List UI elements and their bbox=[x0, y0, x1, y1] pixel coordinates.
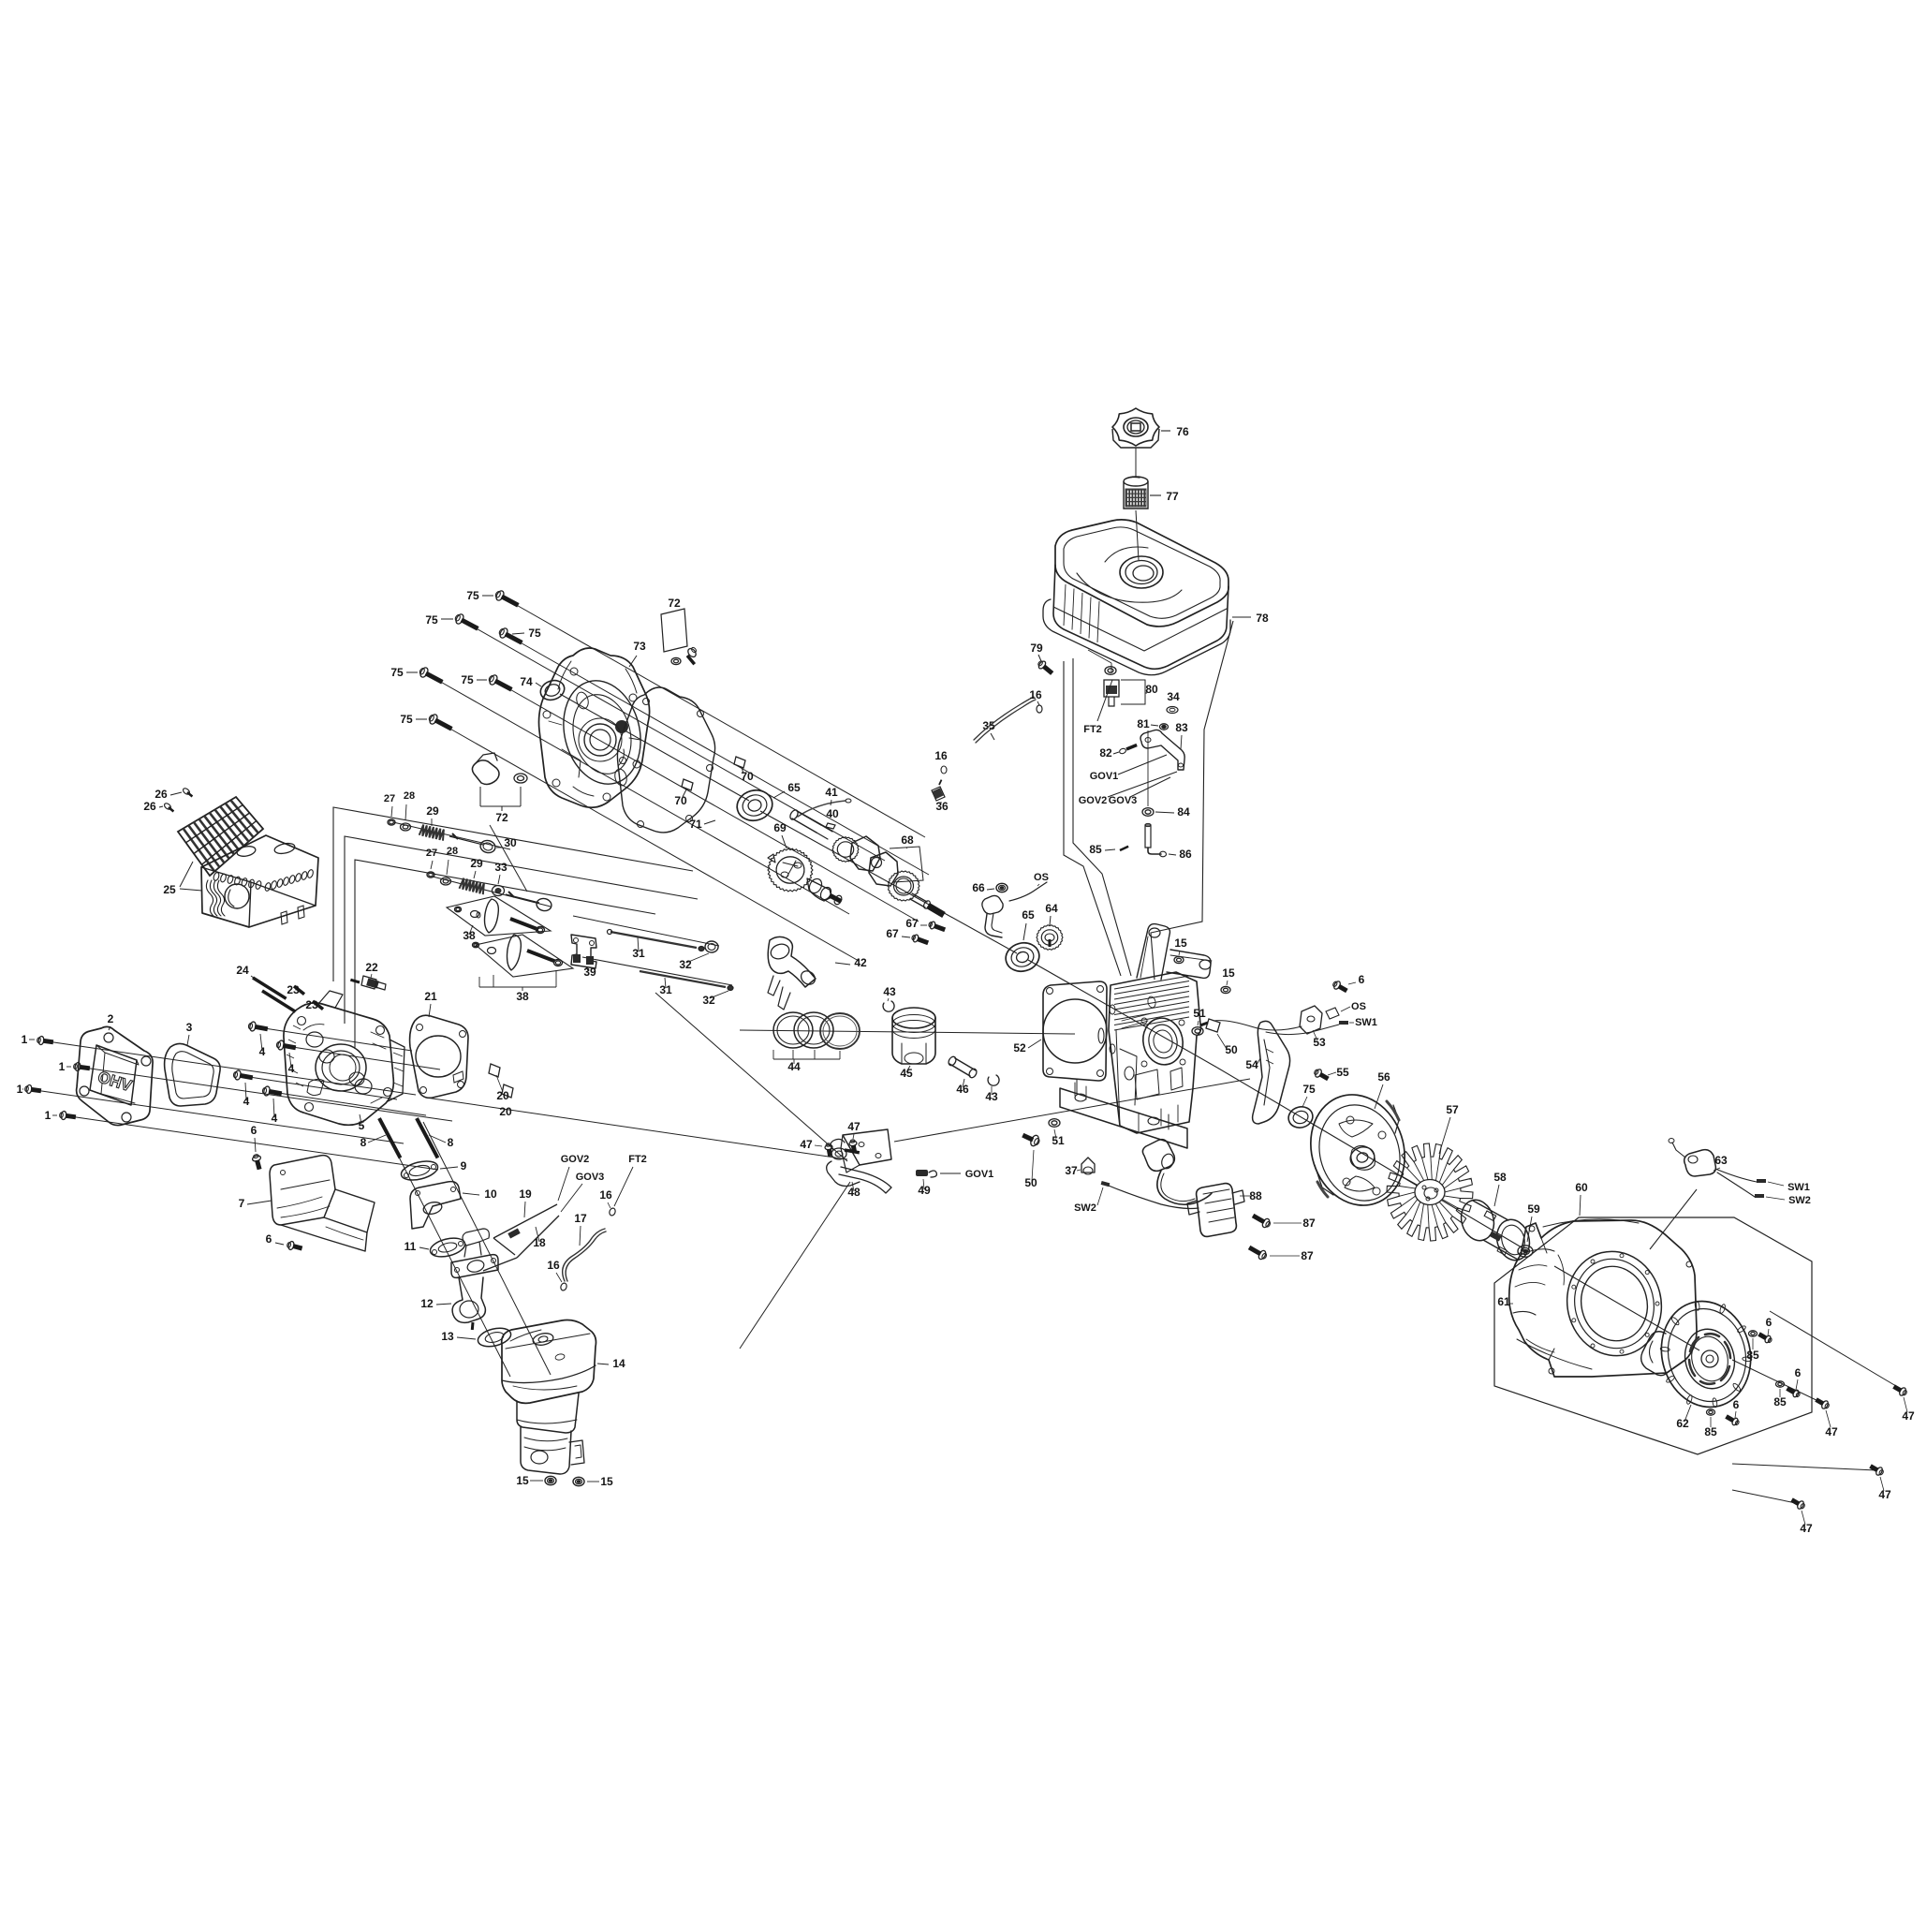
svg-text:GOV1: GOV1 bbox=[1090, 771, 1119, 782]
svg-text:75: 75 bbox=[400, 713, 413, 726]
svg-text:4: 4 bbox=[288, 1062, 295, 1075]
svg-text:6: 6 bbox=[1733, 1398, 1740, 1411]
svg-text:32: 32 bbox=[702, 994, 715, 1007]
svg-text:66: 66 bbox=[972, 881, 985, 894]
svg-text:83: 83 bbox=[1175, 721, 1188, 734]
svg-text:74: 74 bbox=[520, 675, 533, 688]
svg-text:32: 32 bbox=[679, 958, 692, 971]
svg-text:43: 43 bbox=[883, 985, 896, 998]
svg-text:26: 26 bbox=[154, 788, 168, 801]
svg-text:85: 85 bbox=[1089, 843, 1102, 856]
svg-text:50: 50 bbox=[1225, 1043, 1238, 1056]
svg-text:15: 15 bbox=[600, 1475, 613, 1488]
svg-text:27: 27 bbox=[426, 848, 437, 859]
svg-text:47: 47 bbox=[847, 1120, 861, 1133]
svg-text:75: 75 bbox=[1302, 1083, 1316, 1096]
svg-text:10: 10 bbox=[484, 1187, 497, 1201]
svg-text:13: 13 bbox=[441, 1330, 454, 1343]
svg-text:59: 59 bbox=[1527, 1202, 1540, 1216]
svg-text:62: 62 bbox=[1676, 1417, 1689, 1430]
svg-text:54: 54 bbox=[1245, 1058, 1258, 1071]
svg-text:85: 85 bbox=[1704, 1425, 1717, 1438]
svg-text:20: 20 bbox=[499, 1105, 512, 1118]
svg-text:47: 47 bbox=[1825, 1425, 1838, 1438]
svg-text:77: 77 bbox=[1166, 490, 1179, 503]
svg-text:16: 16 bbox=[547, 1259, 560, 1272]
svg-text:4: 4 bbox=[259, 1045, 266, 1058]
svg-text:22: 22 bbox=[365, 961, 378, 974]
svg-text:56: 56 bbox=[1377, 1070, 1390, 1084]
svg-text:29: 29 bbox=[426, 804, 439, 818]
svg-text:75: 75 bbox=[425, 613, 438, 627]
svg-text:36: 36 bbox=[935, 800, 949, 813]
svg-text:47: 47 bbox=[1800, 1522, 1813, 1535]
svg-text:23: 23 bbox=[305, 998, 318, 1011]
svg-text:GOV1: GOV1 bbox=[965, 1169, 994, 1180]
svg-text:15: 15 bbox=[1174, 937, 1187, 950]
svg-text:72: 72 bbox=[668, 597, 681, 610]
svg-text:47: 47 bbox=[800, 1138, 813, 1151]
svg-text:58: 58 bbox=[1493, 1171, 1507, 1184]
svg-text:8: 8 bbox=[448, 1136, 454, 1149]
svg-text:25: 25 bbox=[163, 883, 176, 896]
svg-text:71: 71 bbox=[689, 818, 702, 831]
svg-text:38: 38 bbox=[463, 929, 476, 942]
svg-text:42: 42 bbox=[854, 956, 867, 969]
svg-text:86: 86 bbox=[1179, 848, 1192, 861]
svg-text:47: 47 bbox=[1902, 1409, 1915, 1423]
svg-text:OS: OS bbox=[1034, 872, 1049, 883]
svg-text:47: 47 bbox=[1878, 1488, 1891, 1501]
svg-text:69: 69 bbox=[773, 821, 787, 834]
svg-text:30: 30 bbox=[504, 836, 517, 849]
svg-text:FT2: FT2 bbox=[1083, 724, 1102, 735]
svg-text:SW1: SW1 bbox=[1787, 1182, 1810, 1193]
svg-text:41: 41 bbox=[825, 786, 838, 799]
svg-text:24: 24 bbox=[236, 964, 249, 977]
svg-text:7: 7 bbox=[239, 1197, 245, 1210]
svg-text:3: 3 bbox=[186, 1021, 193, 1034]
svg-text:SW2: SW2 bbox=[1074, 1202, 1096, 1214]
svg-text:75: 75 bbox=[466, 589, 479, 602]
svg-text:23: 23 bbox=[287, 983, 300, 996]
svg-text:16: 16 bbox=[599, 1188, 612, 1202]
svg-text:16: 16 bbox=[934, 749, 948, 762]
svg-text:75: 75 bbox=[461, 673, 474, 686]
svg-text:28: 28 bbox=[447, 846, 458, 857]
svg-text:19: 19 bbox=[519, 1187, 532, 1201]
svg-text:6: 6 bbox=[1359, 973, 1365, 986]
svg-text:78: 78 bbox=[1256, 612, 1269, 625]
svg-text:72: 72 bbox=[495, 811, 508, 824]
svg-text:63: 63 bbox=[1714, 1154, 1728, 1167]
svg-text:37: 37 bbox=[1065, 1164, 1078, 1177]
svg-text:28: 28 bbox=[404, 790, 415, 802]
svg-text:15: 15 bbox=[1222, 966, 1235, 980]
svg-text:26: 26 bbox=[143, 800, 156, 813]
svg-text:8: 8 bbox=[360, 1136, 367, 1149]
svg-text:27: 27 bbox=[384, 793, 395, 804]
svg-text:38: 38 bbox=[516, 990, 529, 1003]
svg-text:SW1: SW1 bbox=[1355, 1017, 1377, 1028]
svg-text:14: 14 bbox=[612, 1357, 625, 1370]
svg-text:5: 5 bbox=[359, 1119, 365, 1132]
svg-text:55: 55 bbox=[1336, 1066, 1349, 1079]
svg-text:1: 1 bbox=[59, 1060, 66, 1073]
svg-text:12: 12 bbox=[420, 1297, 434, 1310]
svg-text:29: 29 bbox=[470, 857, 483, 870]
svg-text:SW2: SW2 bbox=[1788, 1195, 1811, 1206]
svg-text:67: 67 bbox=[905, 917, 919, 930]
svg-text:60: 60 bbox=[1575, 1181, 1588, 1194]
svg-text:67: 67 bbox=[886, 927, 899, 940]
svg-text:9: 9 bbox=[461, 1159, 467, 1172]
svg-text:15: 15 bbox=[516, 1474, 529, 1487]
svg-text:OS: OS bbox=[1351, 1001, 1366, 1012]
svg-text:65: 65 bbox=[787, 781, 801, 794]
svg-text:33: 33 bbox=[494, 861, 507, 874]
svg-text:85: 85 bbox=[1773, 1395, 1787, 1408]
svg-text:2: 2 bbox=[108, 1012, 114, 1025]
svg-text:39: 39 bbox=[583, 966, 596, 979]
svg-text:1: 1 bbox=[22, 1033, 28, 1046]
svg-text:1: 1 bbox=[17, 1083, 23, 1096]
svg-text:61: 61 bbox=[1497, 1295, 1510, 1308]
svg-text:81: 81 bbox=[1137, 717, 1150, 730]
svg-text:85: 85 bbox=[1746, 1349, 1759, 1362]
svg-text:45: 45 bbox=[900, 1067, 913, 1080]
svg-text:75: 75 bbox=[528, 627, 541, 640]
svg-text:87: 87 bbox=[1301, 1249, 1314, 1262]
svg-text:73: 73 bbox=[633, 640, 646, 653]
svg-text:21: 21 bbox=[424, 990, 437, 1003]
svg-text:17: 17 bbox=[574, 1212, 587, 1225]
svg-text:49: 49 bbox=[918, 1184, 931, 1197]
svg-text:FT2: FT2 bbox=[628, 1154, 647, 1165]
svg-text:16: 16 bbox=[1029, 688, 1042, 701]
svg-text:80: 80 bbox=[1145, 683, 1158, 696]
svg-text:88: 88 bbox=[1249, 1189, 1262, 1202]
svg-text:65: 65 bbox=[1022, 908, 1035, 922]
svg-text:82: 82 bbox=[1099, 746, 1112, 760]
svg-text:57: 57 bbox=[1446, 1103, 1459, 1116]
svg-text:75: 75 bbox=[390, 666, 404, 679]
svg-text:1: 1 bbox=[45, 1109, 51, 1122]
svg-text:46: 46 bbox=[956, 1083, 969, 1096]
svg-text:87: 87 bbox=[1302, 1217, 1316, 1230]
svg-text:11: 11 bbox=[405, 1240, 417, 1253]
svg-text:GOV3: GOV3 bbox=[576, 1172, 605, 1183]
svg-text:70: 70 bbox=[674, 794, 687, 807]
svg-text:68: 68 bbox=[901, 833, 914, 847]
svg-text:18: 18 bbox=[533, 1236, 546, 1249]
svg-text:GOV2: GOV2 bbox=[561, 1154, 590, 1165]
svg-text:76: 76 bbox=[1176, 425, 1189, 438]
svg-text:6: 6 bbox=[251, 1124, 257, 1137]
svg-text:50: 50 bbox=[1024, 1176, 1037, 1189]
svg-text:79: 79 bbox=[1030, 642, 1043, 655]
svg-text:GOV2: GOV2 bbox=[1079, 795, 1108, 806]
svg-text:52: 52 bbox=[1013, 1041, 1026, 1054]
svg-text:64: 64 bbox=[1045, 902, 1058, 915]
svg-text:51: 51 bbox=[1193, 1007, 1206, 1020]
svg-text:53: 53 bbox=[1313, 1036, 1326, 1049]
svg-text:GOV3: GOV3 bbox=[1109, 795, 1138, 806]
svg-text:6: 6 bbox=[266, 1232, 272, 1246]
svg-text:40: 40 bbox=[826, 807, 839, 820]
svg-text:6: 6 bbox=[1795, 1366, 1802, 1379]
svg-text:51: 51 bbox=[1052, 1134, 1065, 1147]
svg-text:34: 34 bbox=[1167, 690, 1180, 703]
svg-text:20: 20 bbox=[496, 1089, 509, 1102]
svg-text:48: 48 bbox=[847, 1186, 861, 1199]
svg-text:6: 6 bbox=[1766, 1316, 1773, 1329]
svg-text:84: 84 bbox=[1177, 805, 1190, 819]
